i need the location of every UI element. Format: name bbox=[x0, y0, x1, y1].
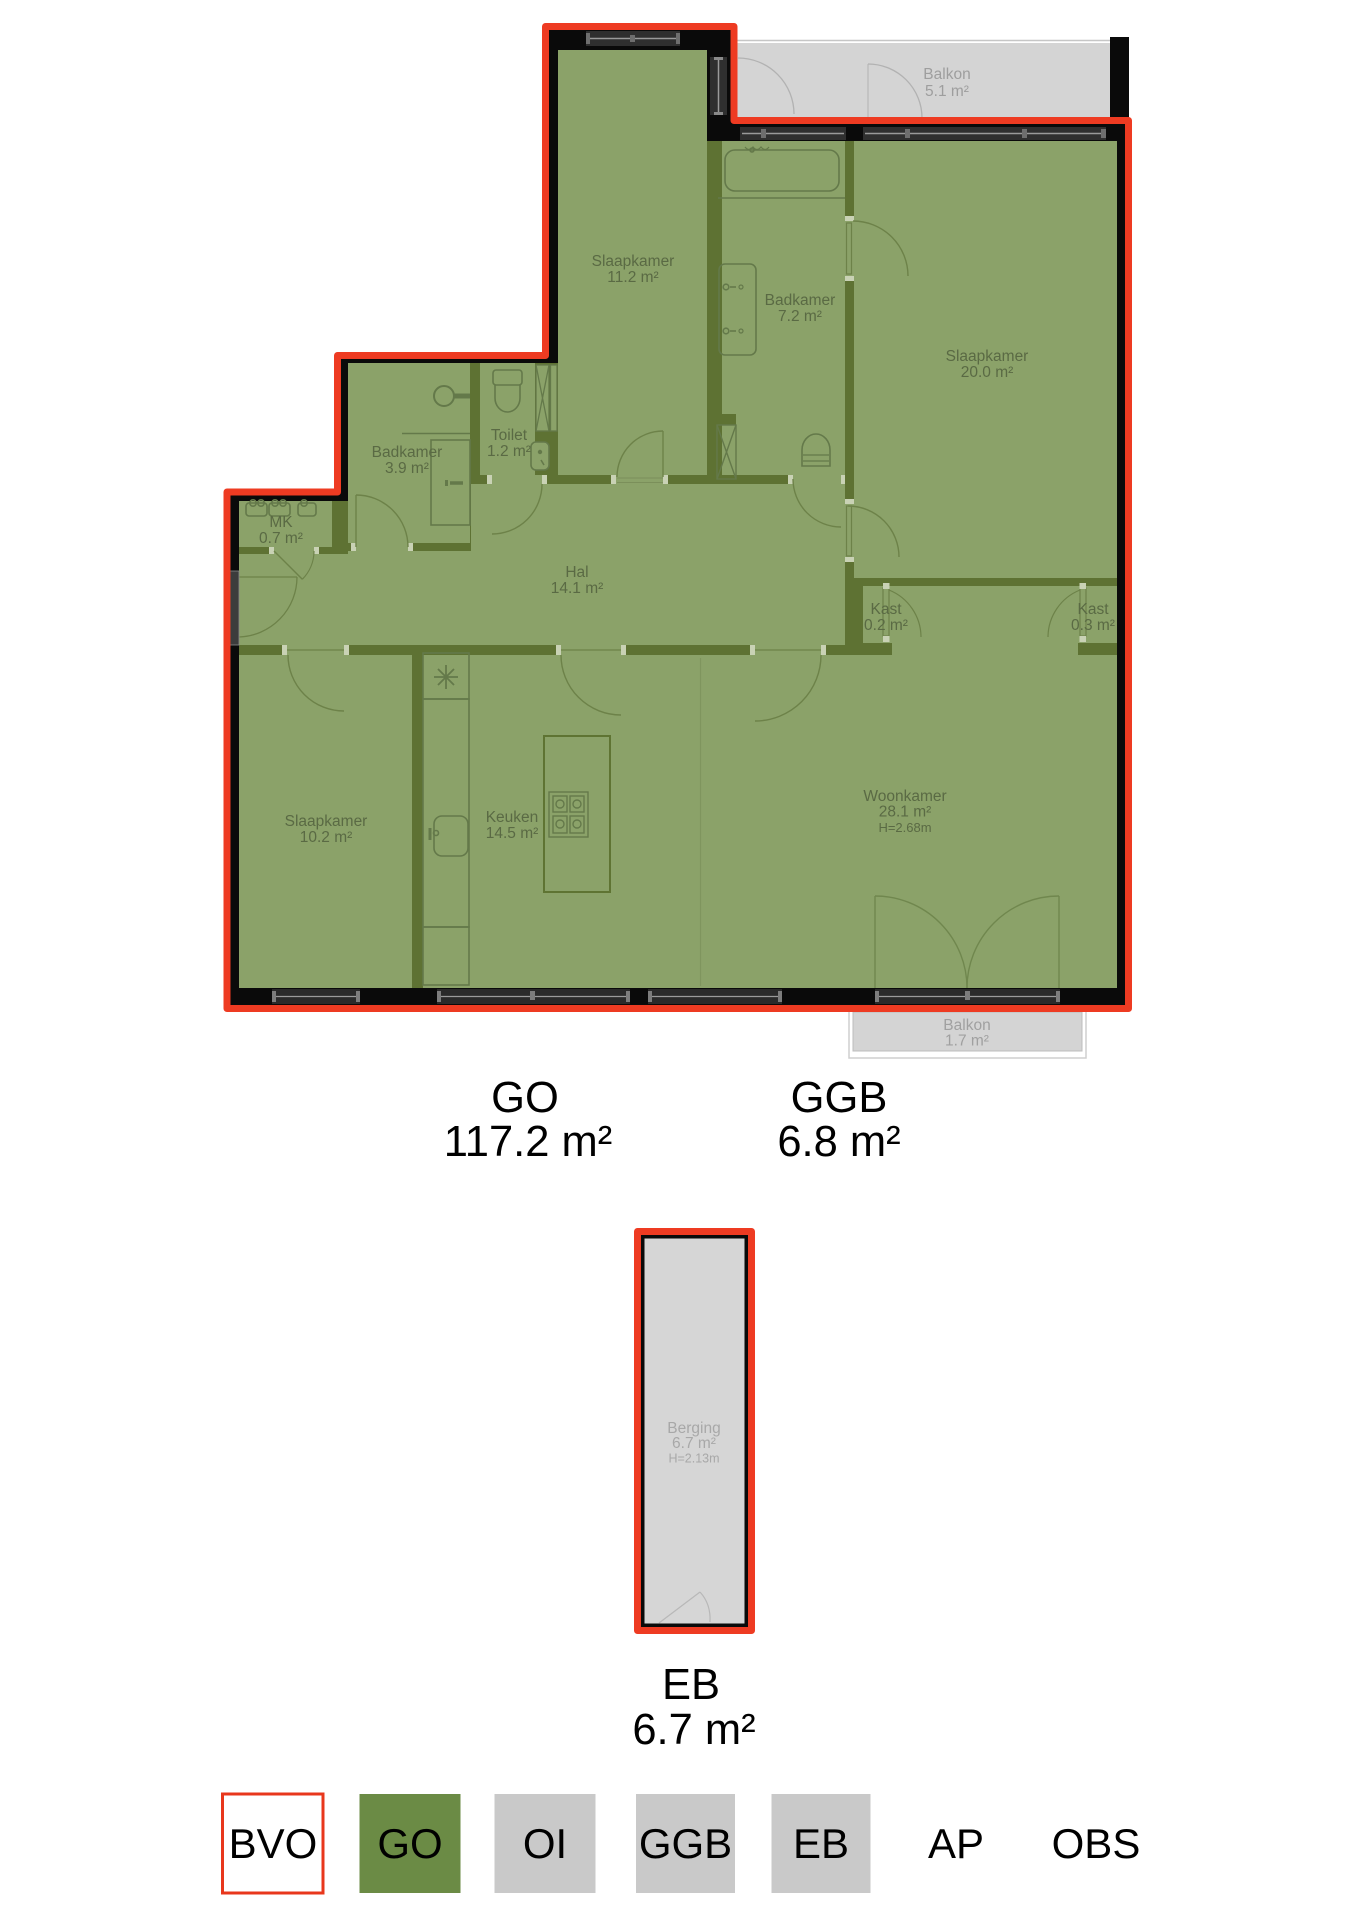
svg-text:Keuken: Keuken bbox=[486, 809, 539, 826]
svg-text:10.2 m²: 10.2 m² bbox=[300, 829, 353, 846]
svg-text:Woonkamer: Woonkamer bbox=[863, 788, 946, 805]
svg-text:Hal: Hal bbox=[565, 564, 588, 581]
svg-text:MK: MK bbox=[269, 514, 293, 531]
svg-text:Balkon: Balkon bbox=[923, 66, 970, 83]
svg-text:EB: EB bbox=[793, 1820, 849, 1867]
svg-text:6.7 m²: 6.7 m² bbox=[672, 1435, 716, 1452]
svg-text:AP: AP bbox=[928, 1820, 984, 1867]
svg-text:Slaapkamer: Slaapkamer bbox=[592, 253, 675, 270]
svg-text:GO: GO bbox=[491, 1074, 559, 1122]
svg-text:Toilet: Toilet bbox=[491, 427, 528, 444]
svg-text:Kast: Kast bbox=[1077, 601, 1109, 618]
svg-text:3.9 m²: 3.9 m² bbox=[385, 460, 429, 477]
svg-text:0.7 m²: 0.7 m² bbox=[259, 530, 303, 547]
svg-text:1.2 m²: 1.2 m² bbox=[487, 443, 531, 460]
svg-text:Slaapkamer: Slaapkamer bbox=[285, 813, 368, 830]
svg-text:GO: GO bbox=[377, 1820, 442, 1867]
svg-text:0.2 m²: 0.2 m² bbox=[864, 617, 908, 634]
svg-text:6.8 m²: 6.8 m² bbox=[777, 1118, 900, 1166]
svg-text:6.7 m²: 6.7 m² bbox=[632, 1706, 755, 1754]
svg-text:OI: OI bbox=[523, 1820, 567, 1867]
svg-text:1.7 m²: 1.7 m² bbox=[945, 1033, 989, 1050]
svg-text:OBS: OBS bbox=[1052, 1820, 1141, 1867]
svg-text:11.2 m²: 11.2 m² bbox=[607, 269, 658, 286]
svg-text:Slaapkamer: Slaapkamer bbox=[946, 348, 1029, 365]
svg-text:BVO: BVO bbox=[229, 1820, 318, 1867]
svg-text:28.1 m²: 28.1 m² bbox=[879, 804, 932, 821]
svg-text:H=2.68m: H=2.68m bbox=[878, 820, 931, 835]
svg-text:EB: EB bbox=[662, 1661, 720, 1709]
svg-text:117.2 m²: 117.2 m² bbox=[444, 1118, 612, 1166]
svg-text:GGB: GGB bbox=[639, 1820, 732, 1867]
svg-text:14.5 m²: 14.5 m² bbox=[486, 825, 539, 842]
svg-text:Balkon: Balkon bbox=[943, 1017, 990, 1034]
svg-text:H=2.13m: H=2.13m bbox=[668, 1452, 719, 1466]
svg-text:Badkamer: Badkamer bbox=[372, 444, 443, 461]
svg-text:5.1 m²: 5.1 m² bbox=[925, 83, 969, 100]
svg-text:Badkamer: Badkamer bbox=[765, 292, 836, 309]
svg-text:7.2 m²: 7.2 m² bbox=[778, 308, 822, 325]
svg-text:Kast: Kast bbox=[870, 601, 902, 618]
svg-text:20.0 m²: 20.0 m² bbox=[961, 364, 1014, 381]
svg-text:14.1 m²: 14.1 m² bbox=[551, 580, 604, 597]
svg-text:0.3 m²: 0.3 m² bbox=[1071, 617, 1115, 634]
svg-text:GGB: GGB bbox=[791, 1074, 888, 1122]
